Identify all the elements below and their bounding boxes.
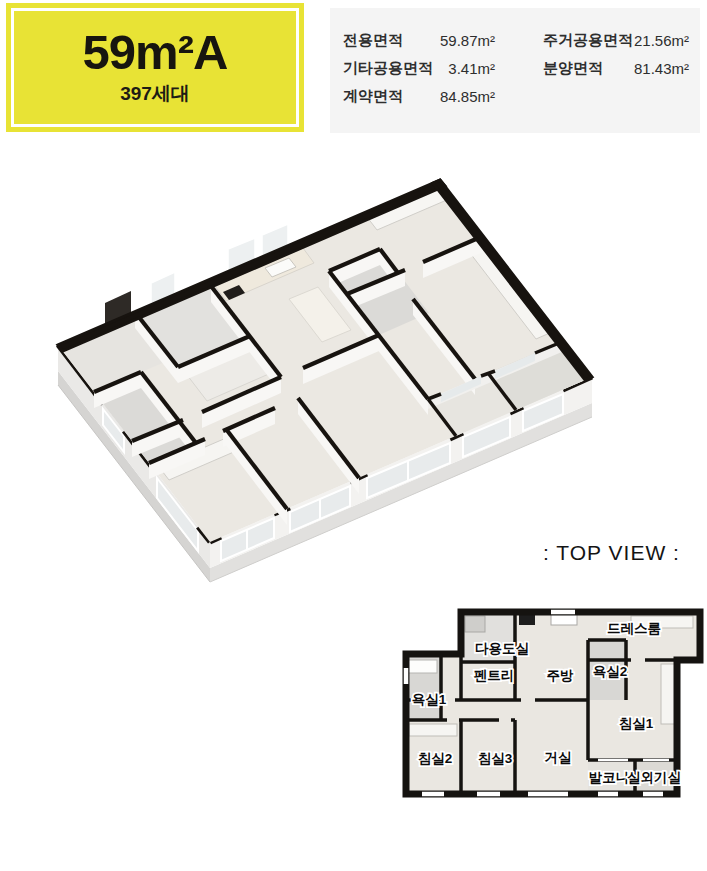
room-label-livingroom: 거실 [545,750,572,765]
area-spec-panel: 전용면적 59.87m² 기타공용면적 3.41m² 계약면적 84.85m² … [330,8,700,133]
area-row-sale: 분양면적 81.43m² [543,54,689,82]
room-label-dressroom: 드레스룸 [607,621,661,636]
room-label-pantry: 펜트리 [474,668,515,683]
unit-type-badge-inner: 59m²A 397세대 [11,8,299,127]
room-label-bathroom1: 욕실1 [412,692,447,707]
top-view-plan-group: 다용도실 펜트리 주방 욕실2 드레스룸 욕실1 침실1 침실2 침실3 거실 … [406,612,700,794]
unit-type-badge: 59m²A 397세대 [6,3,304,132]
area-column-1: 전용면적 59.87m² 기타공용면적 3.41m² 계약면적 84.85m² [343,26,495,110]
room-label-bedroom2: 침실2 [418,751,453,766]
area-label: 분양면적 [543,59,603,78]
unit-size-label: 59m²A [83,28,228,77]
area-row-exclusive: 전용면적 59.87m² [343,26,495,54]
room-label-bedroom1: 침실1 [619,716,654,731]
room-label-kitchen: 주방 [547,668,575,683]
area-label: 기타공용면적 [343,59,433,78]
top-view-plan: 다용도실 펜트리 주방 욕실2 드레스룸 욕실1 침실1 침실2 침실3 거실 … [400,606,707,806]
room-label-acunit: 실외기실 [627,770,681,785]
room-label-utility: 다용도실 [475,641,529,656]
area-row-contract: 계약면적 84.85m² [343,82,495,110]
room-label-balcony: 발코니 [589,770,630,785]
top-view-caption: : TOP VIEW : [543,541,703,565]
room-label-bedroom3: 침실3 [478,751,513,766]
area-label: 전용면적 [343,31,403,50]
area-value: 59.87m² [440,32,495,49]
area-value: 81.43m² [634,60,689,77]
room-label-bathroom2: 욕실2 [593,664,628,679]
area-row-residential-common: 주거공용면적 21.56m² [543,26,689,54]
area-value: 21.56m² [634,32,689,49]
area-label: 주거공용면적 [543,31,633,50]
page-root: { "badge": { "size_label": "59m²A", "hou… [0,0,707,871]
unit-households-label: 397세대 [120,81,190,107]
area-row-other-common: 기타공용면적 3.41m² [343,54,495,82]
area-value: 3.41m² [448,60,495,77]
area-column-2: 주거공용면적 21.56m² 분양면적 81.43m² [543,26,689,82]
area-value: 84.85m² [440,88,495,105]
area-label: 계약면적 [343,87,403,106]
